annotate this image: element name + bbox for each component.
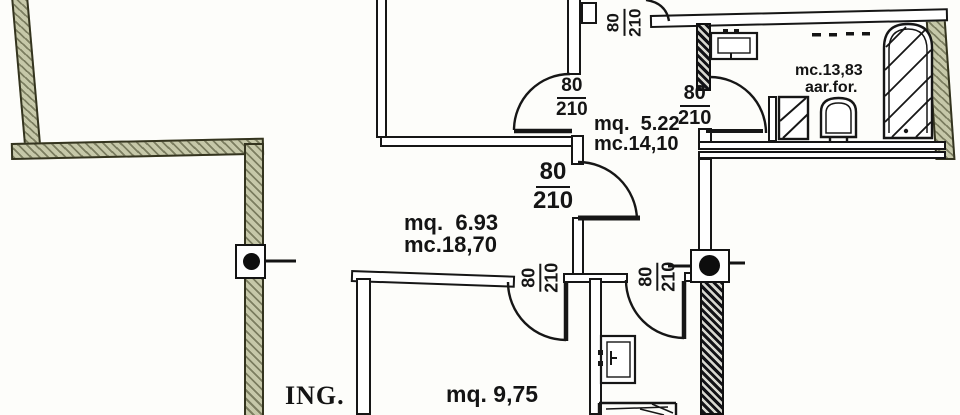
door-height: 210 [678,107,711,129]
door-label-top: 80210 [600,0,648,47]
shower-square [779,97,808,139]
sink-bottom-bathroom [598,336,635,383]
door-width: 80 [557,76,586,99]
door-height: 210 [625,9,644,37]
room-label-corridor-area: mq. 5.22 [594,114,680,134]
room-label-corridor-volume: mc.14,10 [594,134,679,154]
room-label-bottom-area: mq. 9,75 [446,383,538,406]
door-arc-bathroom-topright [710,77,766,133]
toilet [821,98,856,141]
entrance-label: ING. [285,383,345,409]
door-width: 80 [636,263,658,291]
room-label-bath-vent: aar.for. [805,80,857,96]
door-height: 210 [658,262,678,292]
bathtub-bottom [599,403,676,415]
door-label-bathroom-topright: 80210 [678,83,711,129]
door-label-bottom-left: 80210 [516,254,564,302]
door-height: 210 [533,188,573,214]
room-label-mid-volume: mc.18,70 [404,234,497,256]
door-height: 210 [556,99,588,120]
door-width: 80 [680,83,710,107]
door-label-bottom-right: 80210 [633,253,681,301]
floor-plan: 80210 80210 80210 80210 80210 80210 mq. … [0,0,960,415]
door-label-topmiddle-room: 80210 [556,76,588,120]
door-arc-middle [578,162,637,219]
room-label-bath-volume: mc.13,83 [795,63,863,79]
door-width: 80 [519,264,541,292]
door-label-middle: 80210 [533,160,573,214]
bathtub-top [884,24,932,138]
vent-dashes [812,32,870,37]
room-label-mid-area: mq. 6.93 [404,212,498,234]
sink-top-bathroom [711,29,757,59]
door-width: 80 [536,160,571,188]
door-height: 210 [541,263,561,293]
door-width: 80 [604,10,625,37]
door-arc-top [646,0,669,21]
bathtub-drain [904,129,908,133]
